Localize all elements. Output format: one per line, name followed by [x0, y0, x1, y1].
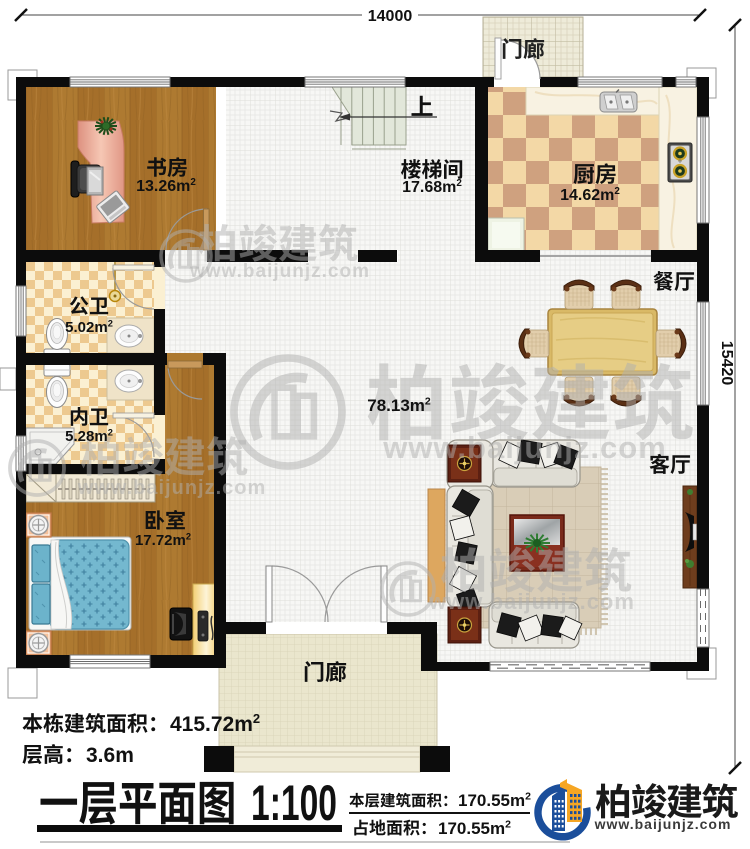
svg-text:415.72m2: 415.72m2 — [170, 711, 260, 736]
svg-text:17.68m2: 17.68m2 — [402, 178, 462, 196]
svg-text:www.baijunjz.com: www.baijunjz.com — [189, 261, 370, 282]
svg-text:170.55m2: 170.55m2 — [458, 791, 531, 811]
svg-text:www.baijunjz.com: www.baijunjz.com — [77, 477, 267, 499]
svg-text:170.55m2: 170.55m2 — [438, 819, 511, 839]
svg-text:5.28m2: 5.28m2 — [65, 427, 113, 445]
svg-text:17.72m2: 17.72m2 — [135, 531, 191, 549]
svg-text:3.6m: 3.6m — [86, 744, 134, 767]
svg-text:www.baijunjz.com: www.baijunjz.com — [382, 430, 667, 465]
svg-text:5.02m2: 5.02m2 — [65, 318, 113, 336]
svg-text:1:100: 1:100 — [251, 775, 337, 831]
svg-text:78.13m2: 78.13m2 — [367, 396, 431, 416]
svg-text:14.62m2: 14.62m2 — [560, 186, 620, 204]
svg-text:15420: 15420 — [718, 341, 735, 386]
svg-text:www.baijunjz.com: www.baijunjz.com — [428, 589, 635, 614]
svg-text:13.26m2: 13.26m2 — [136, 177, 196, 195]
svg-text:www.baijunjz.com: www.baijunjz.com — [594, 816, 732, 832]
svg-text:14000: 14000 — [368, 8, 413, 25]
